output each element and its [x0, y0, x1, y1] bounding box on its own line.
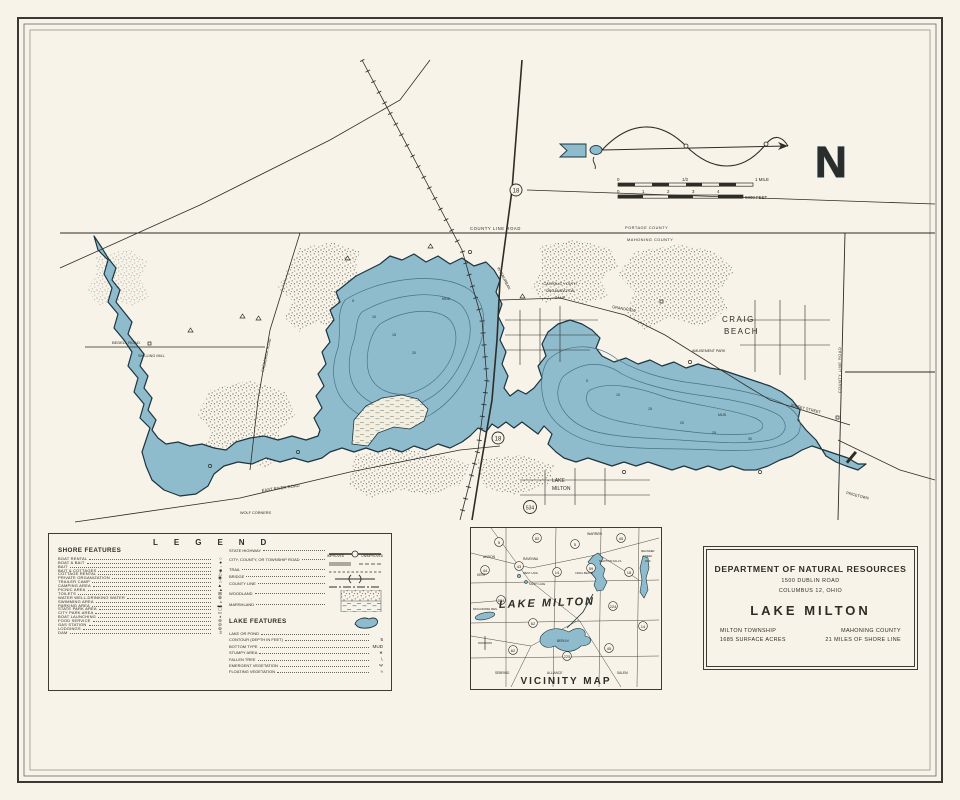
department-name: DEPARTMENT OF NATURAL RESOURCES	[707, 564, 914, 574]
vicinity-map-canvas: 5 82 5 45 44 43 14 59 18 534 224 62 14 6…	[471, 528, 659, 687]
town-label: KENT	[477, 573, 486, 577]
vicinity-map-caption: VICINITY MAP	[471, 676, 661, 687]
label-wolf-corners: WOLF CORNERS	[240, 511, 271, 515]
title-block: DEPARTMENT OF NATURAL RESOURCES 1500 DUB…	[703, 546, 918, 670]
legend-label: BOTTOM TYPE	[229, 644, 258, 649]
label-craig-beach-2: BEACH	[724, 327, 759, 336]
route-shield-534: 534	[526, 506, 535, 512]
scale-feet: 5000 FEET	[745, 195, 768, 200]
route-shield: 14	[641, 624, 646, 629]
town-label: SEBRING	[495, 671, 510, 675]
lake-water	[94, 236, 866, 496]
township-label: MILTON TOWNSHIP	[720, 628, 776, 634]
route-shield-18-north: 18	[513, 189, 520, 195]
legend-symbol: ∖	[371, 657, 383, 662]
scale-bars: 0 1/2 1 MILE 0 1 2 3 4 5000 FEET	[617, 177, 769, 200]
vicinity-lake-milton-label: LAKE MILTON	[499, 596, 596, 611]
acreage-label: 1685 SURFACE ACRES	[720, 637, 786, 643]
legend-label: FALLEN TREE	[229, 657, 256, 662]
town-label: MEANDER	[641, 549, 654, 553]
legend-label: COUNTY LINE	[229, 581, 256, 586]
town-label: WEST LAKE	[523, 571, 538, 575]
route-shield: 45	[619, 536, 624, 541]
legend-label: FLOATING VEGETATION	[229, 669, 275, 674]
town-label: RES.	[645, 559, 652, 563]
shore-features-heading: SHORE FEATURES	[58, 547, 222, 554]
label-cyo-camp-1: CATHOLIC YOUTH	[543, 282, 576, 286]
pond-icon	[351, 615, 381, 635]
address-line-1: 1500 DUBLIN ROAD	[707, 578, 914, 584]
scale-mile: 1 MILE	[755, 177, 769, 182]
label-cyo-camp-2: ORGANIZATION	[546, 289, 575, 293]
legend-symbol: Ψ	[371, 663, 383, 668]
label-amusement-park: AMUSEMENT PARK	[692, 349, 726, 353]
town-label: NEWTON FALLS	[599, 559, 621, 563]
scale-zero: 0	[617, 177, 620, 182]
scale-half: 1/2	[682, 177, 689, 182]
shoreline-label: 21 MILES OF SHORE LINE	[825, 637, 901, 643]
label-mahoning-county: MAHONING COUNTY	[627, 237, 673, 242]
depth-label: 20	[412, 351, 416, 355]
legend-title: LEGEND	[153, 538, 282, 547]
town-label: SANDY LAKE	[529, 582, 546, 586]
feet-tick: 1	[642, 189, 645, 194]
route-shield: 43	[517, 564, 522, 569]
legend-panel: LEGEND SHORE FEATURES BOAT RENTAL○ BOAT …	[48, 533, 392, 691]
label-portage-county: PORTAGE COUNTY	[625, 225, 668, 230]
legend-symbol: ≈	[371, 669, 383, 674]
lake-features-heading: LAKE FEATURES	[229, 618, 287, 625]
title-block-inner: DEPARTMENT OF NATURAL RESOURCES 1500 DUB…	[706, 549, 915, 667]
lake-features-heading-row: LAKE FEATURES	[229, 615, 383, 630]
legend-label: WOODLAND	[229, 591, 253, 596]
feet-tick: 3	[692, 189, 695, 194]
legend-row: COUNTY LINE	[229, 580, 383, 587]
feet-tick: 4	[717, 189, 720, 194]
depth-label: 10	[372, 315, 376, 319]
label-east-river-road: EAST RIVER ROAD	[261, 483, 299, 493]
town-label: MOGADORE RES.	[473, 607, 498, 611]
depth-label: 15	[392, 333, 396, 337]
depth-label: 20	[680, 421, 684, 425]
route-shield: 224	[610, 604, 617, 609]
address-line-2: COLUMBUS 12, OHIO	[707, 588, 914, 594]
depth-label: 15	[648, 407, 652, 411]
label-county-line-road: COUNTY LINE ROAD	[470, 226, 521, 231]
label-cyo-camp-3: CAMP	[555, 296, 566, 300]
legend-label: TRAIL	[229, 567, 240, 572]
lake-name-title: LAKE MILTON	[707, 603, 914, 618]
north-arrow: N	[560, 127, 847, 187]
town-label: ALLIANCE	[547, 671, 562, 675]
route-shield: 59	[589, 566, 594, 571]
legend-row: WOODLAND	[229, 588, 383, 599]
label-county-line-road-vertical: COUNTY LINE ROAD	[837, 347, 842, 393]
route-shield: 62	[511, 648, 516, 653]
town-label: CREEK	[643, 554, 652, 558]
legend-label: LAKE OR POND	[229, 631, 259, 636]
legend-label: CONTOUR (DEPTH IN FEET)	[229, 637, 283, 642]
county-label: MAHONING COUNTY	[841, 628, 901, 634]
map-sheet: 18 18 534 COUNTY LINE ROAD PORTAGE COUNT…	[0, 0, 960, 800]
legend-label: EMERGENT VEGETATION	[229, 663, 278, 668]
depth-label: 5	[586, 379, 588, 383]
route-shield: 62	[531, 621, 536, 626]
label-shilling-mill: SHILLING MILL	[138, 354, 165, 358]
label-craig-beach-1: CRAIG	[722, 315, 755, 324]
depth-label: 25	[712, 431, 716, 435]
vicinity-map-panel: 5 82 5 45 44 43 14 59 18 534 224 62 14 6…	[470, 527, 662, 690]
legend-label: STATE HIGHWAY	[229, 548, 261, 553]
route-shield-18-south: 18	[495, 437, 502, 443]
depth-label: 5	[352, 299, 354, 303]
legend-label: DAM	[58, 630, 68, 635]
route-shield: 45	[607, 646, 612, 651]
route-shield: 18	[627, 570, 632, 575]
label-village-lake: LAKE	[552, 478, 565, 484]
depth-label: 30	[748, 437, 752, 441]
legend-symbol: ≡	[213, 631, 222, 635]
town-label: CRAIG BEACH	[575, 571, 593, 575]
legend-label: STUMPY AREA	[229, 650, 257, 655]
town-label: AKRON	[483, 555, 496, 559]
legend-row: MARSHLAND	[229, 599, 383, 610]
town-label: BERLIN	[557, 639, 569, 643]
legend-line-styles: STATE HIGHWAY CITY, COUNTY, OR TOWNSHIP …	[229, 547, 383, 674]
route-shield: 14	[555, 570, 560, 575]
label-frederick-road: FREDERICK ROAD	[261, 338, 272, 372]
legend-shore-features: SHORE FEATURES BOAT RENTAL○ BOAT & BAIT●…	[58, 547, 222, 635]
vicinity-compass-cross	[478, 636, 492, 650]
route-shield: 225	[564, 654, 571, 659]
north-letter: N	[815, 138, 847, 187]
feet-tick: 2	[667, 189, 670, 194]
label-village-milton: MILTON	[552, 486, 571, 492]
route-shield: 82	[535, 536, 540, 541]
legend-row: FLOATING VEGETATION≈	[229, 668, 383, 674]
legend-row: DAM≡	[58, 631, 222, 635]
town-label: WARREN	[587, 532, 602, 536]
legend-symbol: ∗	[371, 650, 383, 655]
label-bedell-road: BEDELL ROAD	[112, 340, 140, 345]
marshland-swatch	[327, 599, 383, 609]
town-label: RAVENNA	[523, 557, 539, 561]
town-label: SALEM	[617, 671, 628, 675]
woodland-swatch	[327, 588, 383, 598]
depth-label: 10	[616, 393, 620, 397]
legend-symbol: 5	[371, 637, 383, 642]
legend-label: BRIDGE	[229, 574, 244, 579]
legend-label: MARSHLAND	[229, 602, 254, 607]
legend-symbol: MUD	[371, 644, 383, 649]
legend-label: CITY, COUNTY, OR TOWNSHIP ROAD	[229, 557, 300, 562]
label-pricetown: PRICETOWN	[846, 491, 870, 501]
label-mud-east: MUD	[718, 413, 727, 417]
label-mud-west: MUD	[442, 297, 451, 301]
